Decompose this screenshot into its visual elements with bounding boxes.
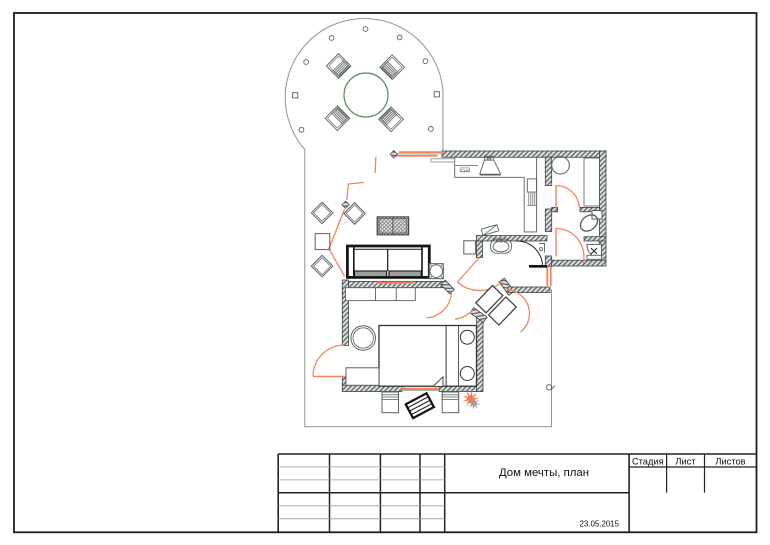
svg-text:Суш: Суш [461, 167, 469, 172]
svg-text:Лист: Лист [675, 456, 696, 466]
svg-text:Дом мечты, план: Дом мечты, план [499, 467, 589, 479]
svg-text:23.05.2015: 23.05.2015 [580, 520, 620, 529]
svg-text:Листов: Листов [715, 456, 745, 466]
svg-text:Стадия: Стадия [632, 456, 664, 466]
